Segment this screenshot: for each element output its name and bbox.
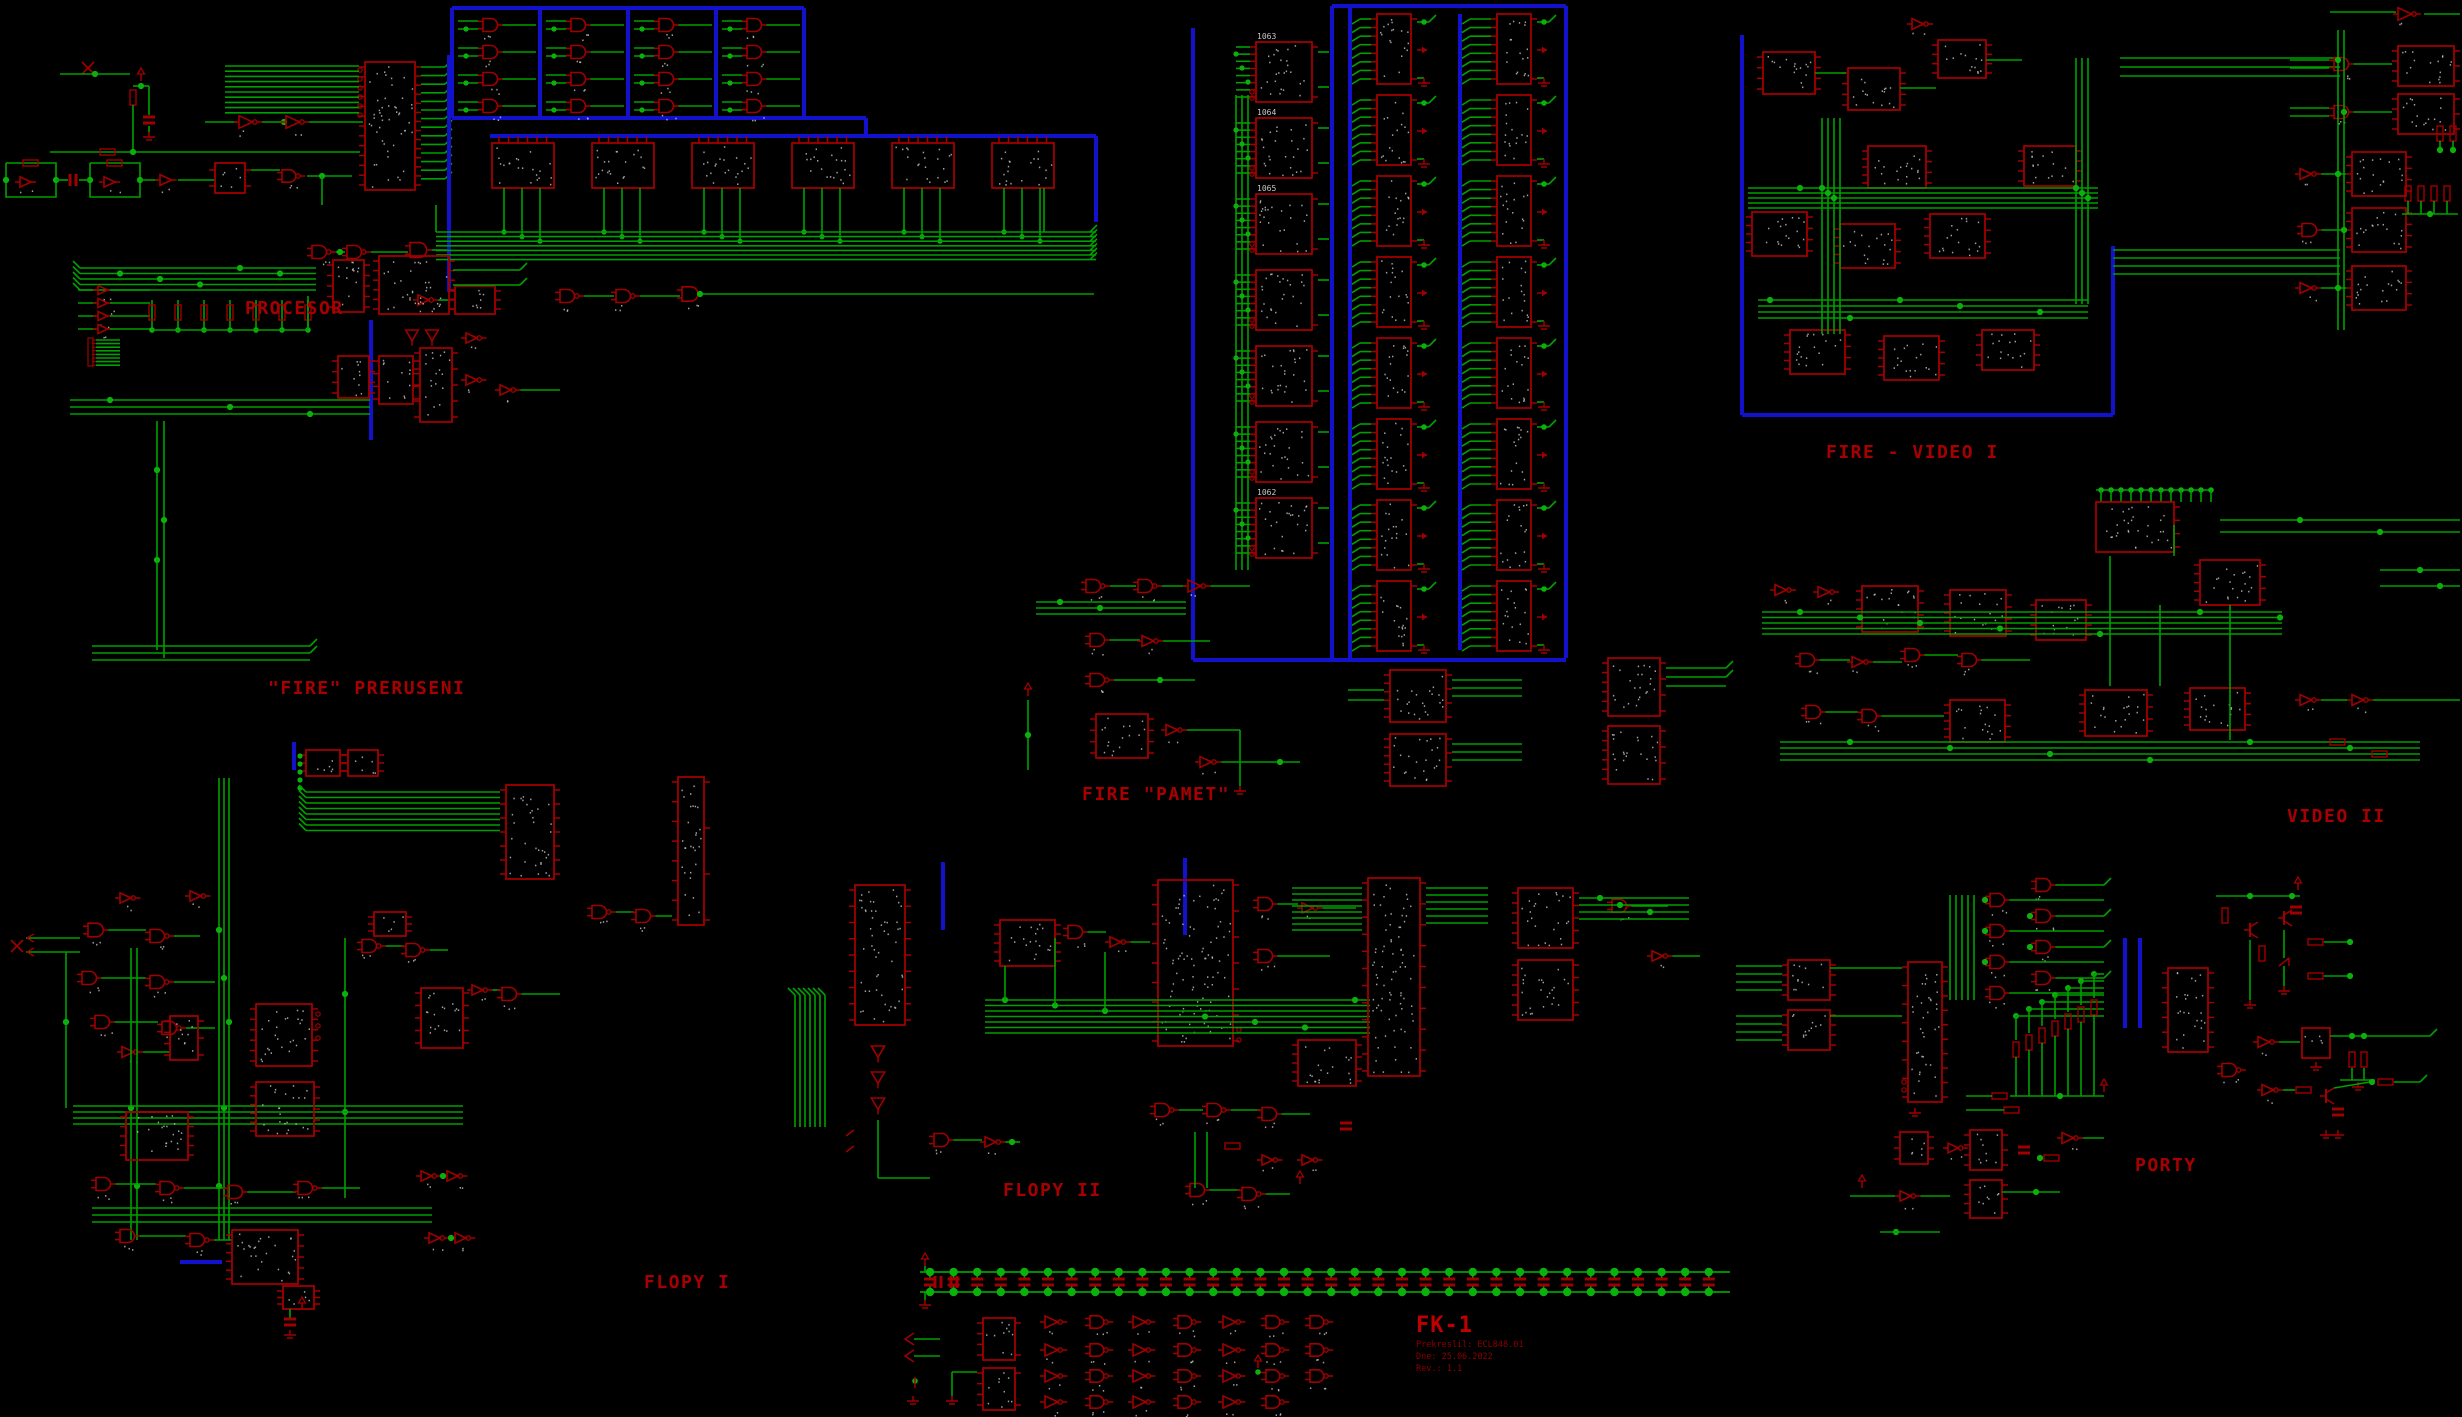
decoupling-capacitor-strip <box>919 1253 1730 1308</box>
section-video-ii <box>1762 487 2460 763</box>
section-flopy-ii <box>788 858 1700 1209</box>
section-label-fire-pamet: FIRE "PAMET" <box>1082 784 1230 805</box>
section-fire-video-i <box>1742 8 2460 415</box>
svg-text:1063: 1063 <box>1257 32 1276 41</box>
section-label-fire-video-i: FIRE - VIDEO I <box>1826 442 1999 463</box>
title-block-date: Dne: 25.06.2022 <box>1416 1352 1493 1362</box>
section-label-procesor: PROCESOR <box>245 298 344 319</box>
section-label-flopy-ii: FLOPY II <box>1003 1180 1102 1201</box>
spare-gates-block <box>905 1316 1333 1417</box>
section-fire-pamet: 1063106410651062 <box>1025 6 1734 794</box>
svg-text:1062: 1062 <box>1257 488 1276 497</box>
section-label-flopy-i: FLOPY I <box>644 1272 730 1293</box>
title-block-author: Prekreslil: ECL848.01 <box>1416 1340 1523 1350</box>
section-label-video-ii: VIDEO II <box>2287 806 2386 827</box>
section-label-fire-preruseni: "FIRE" PRERUSENI <box>268 678 465 699</box>
title-block: FK-1 Prekreslil: ECL848.01 Dne: 25.06.20… <box>1416 1313 1523 1374</box>
svg-text:1065: 1065 <box>1257 184 1276 193</box>
title-block-rev: Rev.: 1.1 <box>1416 1364 1462 1374</box>
svg-text:1064: 1064 <box>1257 108 1276 117</box>
section-porty <box>1736 877 2437 1235</box>
section-label-porty: PORTY <box>2135 1155 2197 1176</box>
section-labels: PROCESOR "FIRE" PRERUSENI FIRE "PAMET" F… <box>245 298 2386 1293</box>
schematic-canvas[interactable]: 1063106410651062 PROCESOR "FIRE" PRERUSE… <box>0 0 2462 1417</box>
title-block-name: FK-1 <box>1416 1313 1473 1338</box>
section-flopy-i <box>11 742 710 1338</box>
